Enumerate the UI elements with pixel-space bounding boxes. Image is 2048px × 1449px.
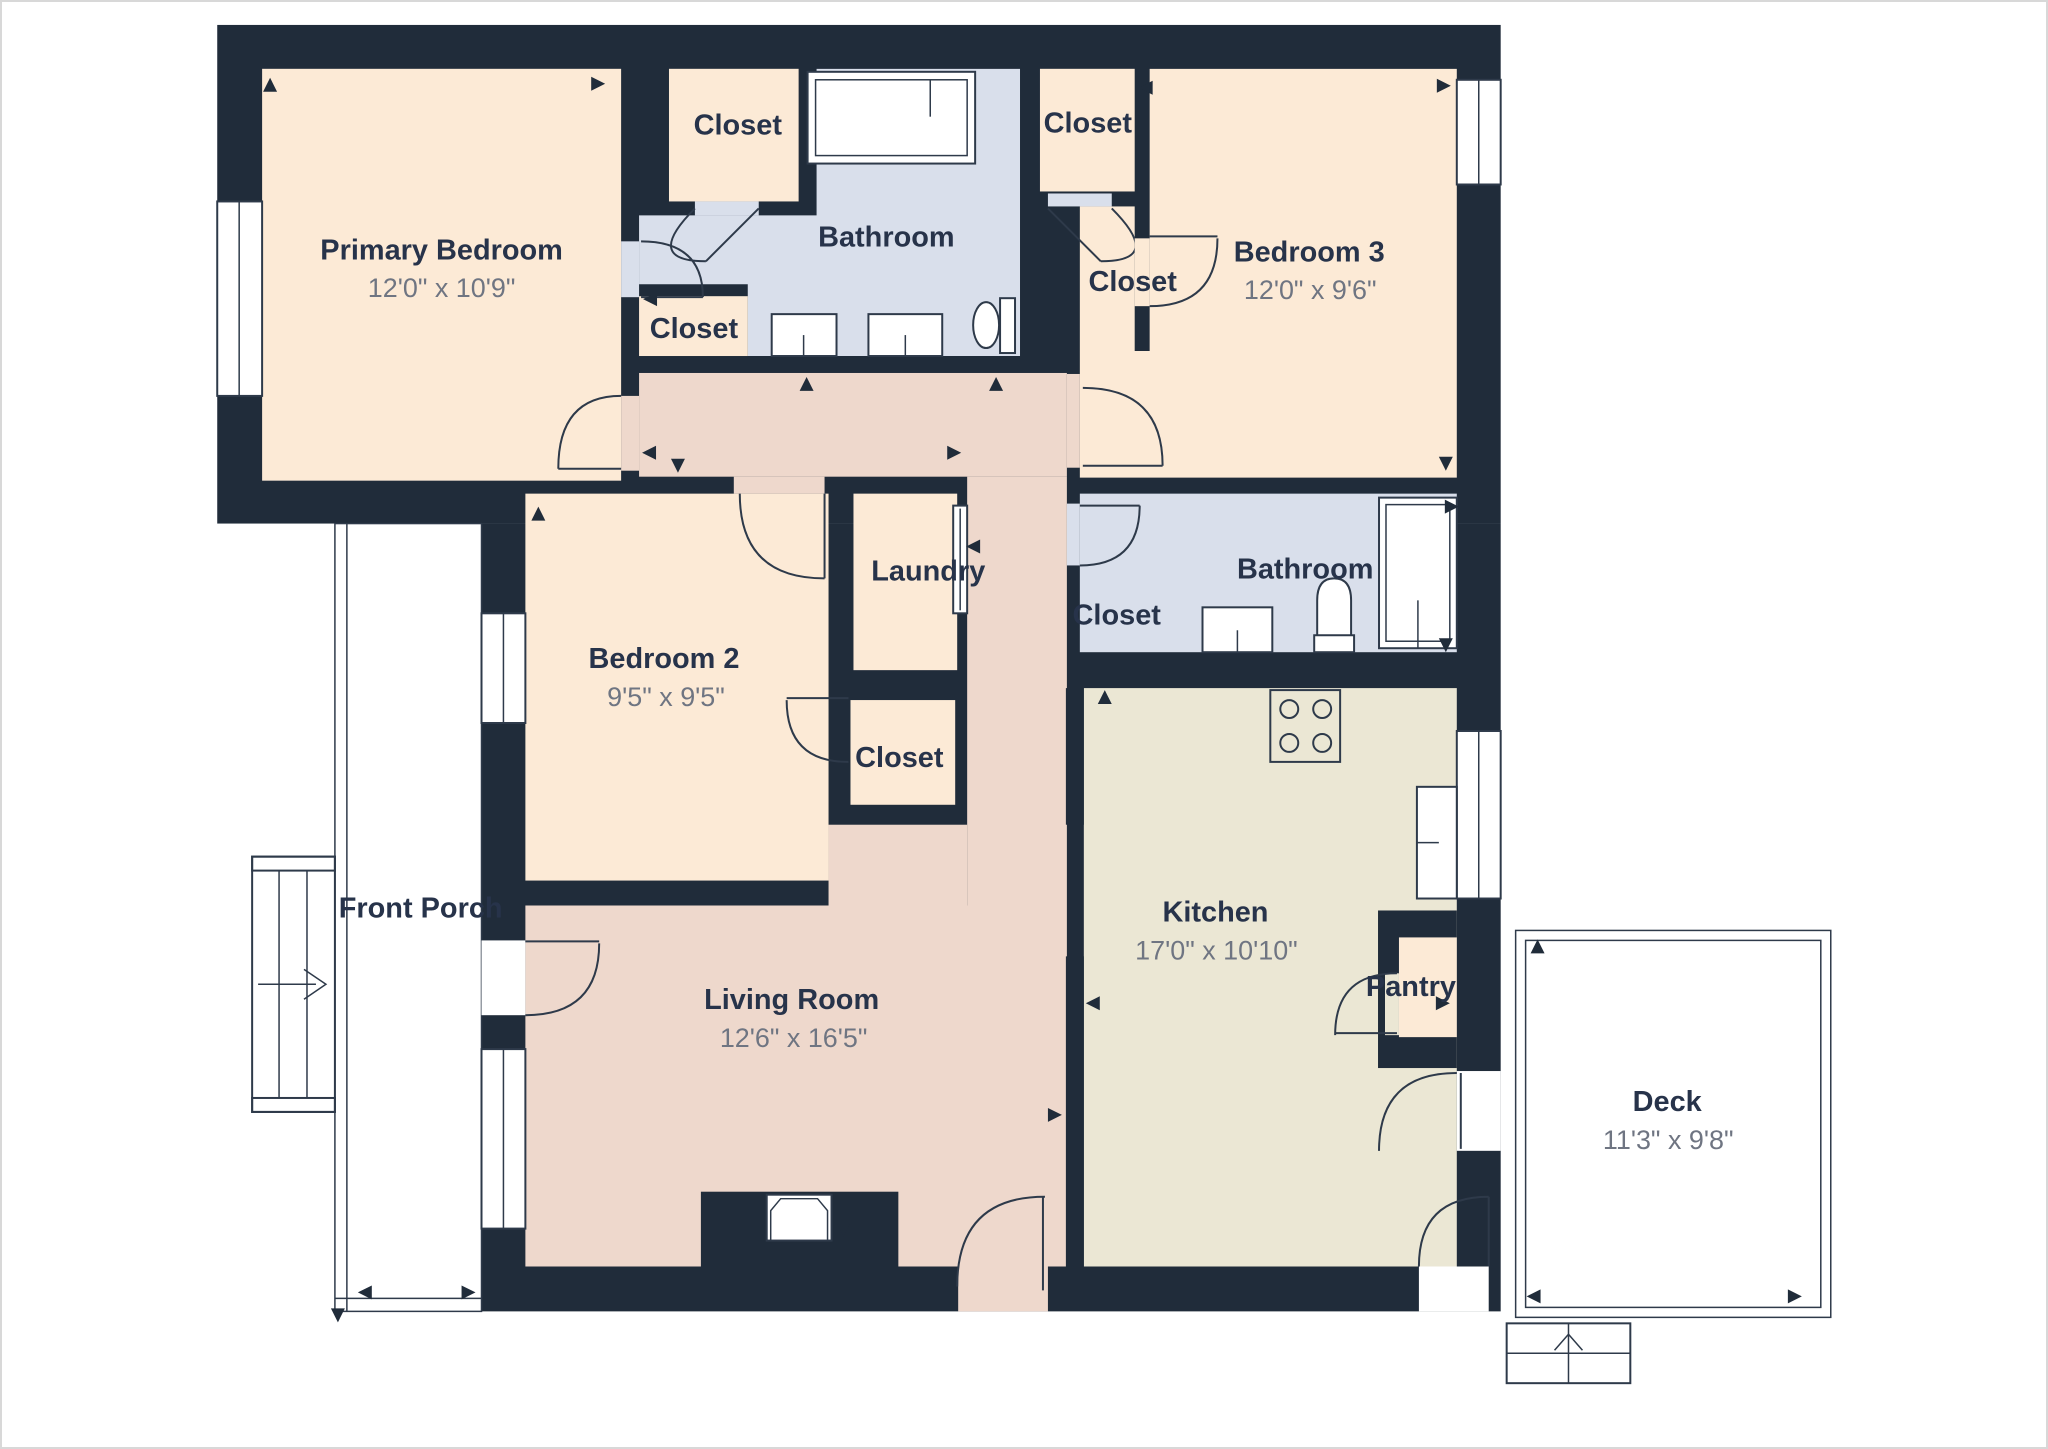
room-label-closet-e: Closet [1073, 599, 1162, 631]
porch-stairs-icon [252, 857, 335, 1112]
room-label-bedroom-3: Bedroom 3 [1234, 236, 1385, 268]
room-label-living-room: Living Room [704, 984, 879, 1016]
fireplace-icon [701, 1192, 898, 1267]
room-dims-primary-bedroom: 12'0" x 10'9" [368, 273, 516, 303]
floor-plan-page: Primary Bedroom 12'0" x 10'9" Closet Bat… [0, 0, 2048, 1449]
deck-steps-icon [1507, 1323, 1631, 1383]
fridge-icon [1417, 787, 1457, 899]
shower-icon [1379, 498, 1457, 649]
sink-icon [1203, 607, 1273, 652]
room-label-bathroom-2: Bathroom [1237, 553, 1374, 585]
toilet-icon [973, 298, 1015, 353]
toilet-icon [1314, 578, 1354, 652]
room-label-deck: Deck [1633, 1086, 1703, 1118]
room-label-kitchen: Kitchen [1162, 896, 1268, 928]
room-dims-bedroom-3: 12'0" x 9'6" [1244, 275, 1377, 305]
sink-icon [868, 314, 942, 356]
window [1457, 80, 1501, 185]
room-label-bedroom-2: Bedroom 2 [589, 643, 740, 675]
floor-plan-svg: Primary Bedroom 12'0" x 10'9" Closet Bat… [2, 2, 2046, 1447]
room-label-closet-a: Closet [694, 110, 783, 142]
sink-icon [772, 314, 837, 356]
room-label-bathroom-1: Bathroom [818, 221, 955, 253]
room-label-closet-b: Closet [1044, 108, 1133, 140]
room-dims-bedroom-2: 9'5" x 9'5" [607, 682, 725, 712]
room-label-front-porch: Front Porch [339, 892, 503, 924]
room-dims-kitchen: 17'0" x 10'10" [1135, 935, 1298, 965]
window [482, 1049, 526, 1229]
room-label-closet-c: Closet [1089, 266, 1178, 298]
stove-icon [1270, 690, 1340, 762]
room-label-closet-d: Closet [650, 313, 739, 345]
room-label-closet-f: Closet [855, 742, 944, 774]
window [1457, 731, 1501, 899]
window [217, 201, 262, 395]
room-label-pantry: Pantry [1366, 971, 1456, 1003]
room-label-laundry: Laundry [871, 555, 985, 587]
bathtub-icon [808, 72, 976, 164]
hallway-floor [829, 825, 968, 906]
room-dims-deck: 11'3" x 9'8" [1603, 1125, 1734, 1155]
hallway-floor [639, 373, 1067, 477]
deck [1507, 930, 1831, 1383]
room-label-primary-bedroom: Primary Bedroom [320, 234, 563, 266]
window [482, 613, 526, 723]
room-dims-living-room: 12'6" x 16'5" [720, 1023, 868, 1053]
